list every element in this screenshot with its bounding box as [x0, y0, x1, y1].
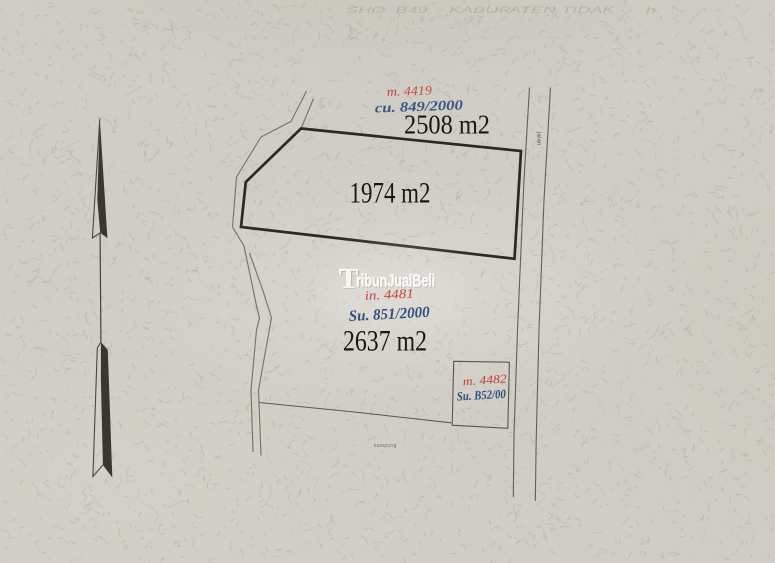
svg-text:Su. B52/00: Su. B52/00 — [456, 387, 506, 404]
svg-text:2637 m2: 2637 m2 — [343, 325, 427, 358]
svg-text:1974 m2: 1974 m2 — [350, 177, 431, 210]
svg-text:m. 4482: m. 4482 — [462, 371, 507, 388]
svg-text:kampung: kampung — [374, 443, 397, 449]
svg-text:in. 4481: in. 4481 — [364, 285, 414, 303]
svg-text:2508 m2: 2508 m2 — [404, 109, 490, 140]
svg-text:jalan: jalan — [536, 131, 542, 146]
svg-text:m. 4419: m. 4419 — [387, 82, 433, 99]
svg-text:n ka pa tn d: n ka pa tn d — [390, 14, 571, 24]
